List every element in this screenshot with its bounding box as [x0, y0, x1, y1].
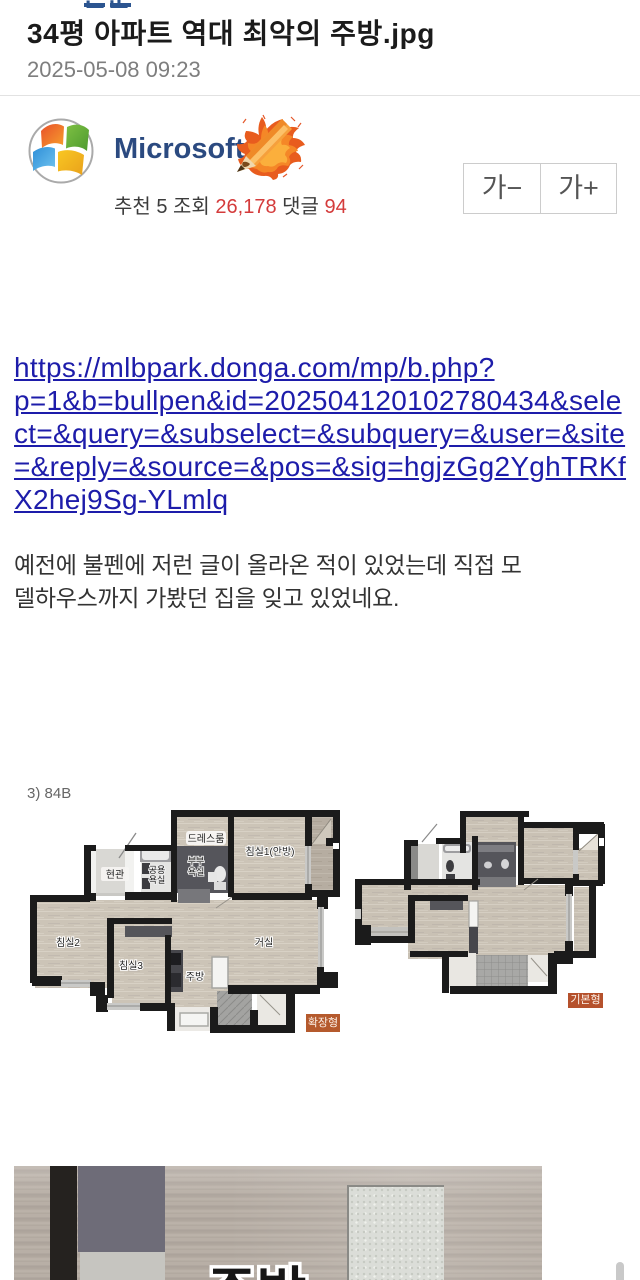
svg-text:침실1(안방): 침실1(안방)	[245, 846, 294, 858]
svg-text:드레스룸: 드레스룸	[188, 833, 225, 845]
svg-text:부부: 부부	[188, 856, 205, 866]
svg-text:거실: 거실	[255, 937, 273, 949]
svg-text:욕실: 욕실	[188, 867, 205, 877]
svg-text:침실3: 침실3	[119, 960, 143, 972]
svg-text:주방: 주방	[186, 971, 204, 983]
svg-text:주방: 주방	[207, 1263, 306, 1280]
svg-text:욕실: 욕실	[149, 875, 166, 885]
svg-text:현관: 현관	[106, 869, 124, 881]
svg-text:공용: 공용	[149, 865, 166, 875]
svg-text:침실2: 침실2	[56, 937, 80, 949]
